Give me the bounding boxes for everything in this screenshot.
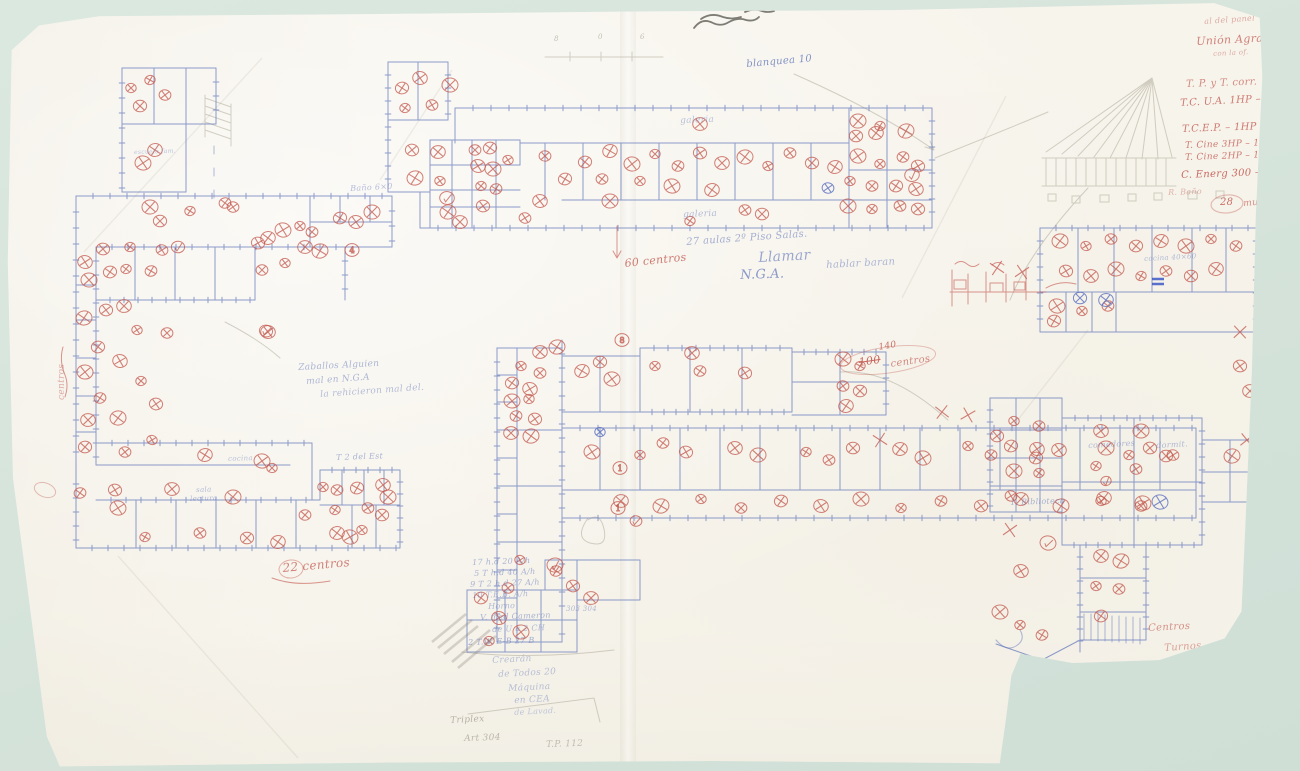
handwritten-note: Triplex bbox=[450, 715, 485, 726]
outlet-x-mark bbox=[1080, 240, 1092, 251]
stamp-hatch bbox=[432, 614, 478, 654]
outlet-x-mark bbox=[850, 113, 867, 128]
handwritten-note: 6 bbox=[640, 34, 645, 41]
handwritten-note: dormit. bbox=[1156, 440, 1188, 450]
outlet-x-mark bbox=[557, 172, 573, 186]
outlet-x-mark bbox=[518, 212, 532, 225]
outlet-x-mark bbox=[868, 126, 884, 140]
outlet-x-mark bbox=[990, 430, 1004, 443]
outlet-x-mark bbox=[548, 338, 567, 355]
blue-highlight bbox=[1152, 279, 1164, 284]
outlet-x-mark bbox=[502, 154, 514, 165]
circled-number: 1 bbox=[613, 462, 627, 475]
outlet-x-mark bbox=[1243, 384, 1258, 397]
handwritten-note: 303 304 bbox=[566, 606, 597, 613]
red-detail bbox=[1014, 282, 1025, 290]
outlet-x-mark bbox=[602, 194, 618, 208]
red-detail bbox=[992, 263, 1004, 266]
outlet-x-mark bbox=[534, 368, 546, 379]
outlet-x-mark bbox=[738, 204, 751, 216]
red-detail bbox=[954, 280, 966, 289]
outlet-x-mark bbox=[866, 204, 877, 214]
pencil-line bbox=[205, 95, 231, 146]
paper-sheet: 4811 al del panelUnión Agrariacon la of.… bbox=[0, 0, 1300, 771]
outlet-x-mark bbox=[405, 144, 419, 157]
handwritten-note: Horno bbox=[488, 602, 515, 611]
outlet-x-mark bbox=[985, 449, 997, 460]
outlet-x-mark bbox=[119, 446, 132, 457]
outlet-x-mark bbox=[394, 81, 409, 95]
outlet-x-mark bbox=[840, 199, 856, 214]
outlet-x-mark bbox=[1223, 448, 1241, 465]
outlet-check-mark bbox=[439, 191, 455, 205]
handwritten-note: T.P. 112 bbox=[546, 740, 583, 750]
outlet-x-mark bbox=[240, 532, 253, 544]
outlet-x-mark bbox=[139, 531, 151, 542]
outlet-x-mark bbox=[603, 371, 621, 387]
handwritten-note: C. Energ 300 – 6.4 bbox=[1181, 168, 1281, 181]
outlet-x-mark bbox=[476, 199, 491, 212]
outlet-x-mark bbox=[583, 444, 601, 461]
outlet-x-mark bbox=[875, 159, 886, 168]
circled-number: 1 bbox=[611, 502, 625, 515]
outlet-x-mark bbox=[911, 203, 925, 216]
outlet-x-mark bbox=[800, 446, 812, 457]
outlet-x-mark bbox=[1143, 442, 1157, 455]
blue-highlight-marks bbox=[1152, 279, 1164, 284]
pencil-line bbox=[1046, 78, 1152, 152]
outlet-x-mark bbox=[596, 173, 609, 184]
outlet-x-mark bbox=[1051, 443, 1067, 458]
outlet-x-mark bbox=[102, 265, 117, 279]
outlet-x-mark bbox=[126, 83, 137, 93]
outlet-x-mark bbox=[908, 181, 925, 196]
outlet-x-mark bbox=[1229, 240, 1242, 252]
outlet-x-mark bbox=[1129, 463, 1143, 475]
handwritten-note: R. Baño bbox=[1168, 188, 1202, 197]
outlet-x-mark bbox=[148, 397, 163, 411]
outlet-x-mark bbox=[755, 208, 768, 220]
handwritten-note: Art 304 bbox=[464, 734, 501, 744]
outlet-x-mark bbox=[434, 176, 446, 187]
outlet-x-mark bbox=[331, 484, 344, 496]
outlet-x-mark bbox=[318, 482, 329, 492]
outlet-x-mark bbox=[1035, 629, 1049, 642]
crease-line bbox=[380, 70, 452, 180]
red-loop bbox=[32, 480, 57, 501]
circled-number-value: 1 bbox=[618, 464, 623, 473]
outlet-x-mark bbox=[671, 160, 685, 172]
outlet-x-mark bbox=[483, 141, 498, 155]
outlet-x-mark bbox=[1046, 314, 1062, 329]
outlet-x-mark bbox=[893, 199, 907, 212]
plain-x-mark bbox=[961, 408, 976, 423]
outlet-x-mark bbox=[509, 410, 523, 423]
outlet-x-mark bbox=[224, 489, 241, 504]
outlet-x-mark bbox=[306, 226, 318, 237]
pencil-line bbox=[794, 74, 934, 150]
outlet-x-mark bbox=[962, 441, 973, 451]
outlet-x-mark bbox=[120, 264, 131, 274]
outlet-x-mark bbox=[442, 78, 458, 92]
outlet-x-mark bbox=[153, 215, 166, 227]
handwritten-note: Unión Agraria bbox=[1196, 32, 1280, 47]
outlet-x-mark bbox=[504, 427, 519, 440]
outlet-x-mark bbox=[888, 179, 903, 193]
red-detail bbox=[955, 262, 979, 267]
outlet-x-mark bbox=[159, 89, 172, 101]
handwritten-note: Turnos… bbox=[1164, 641, 1212, 654]
outlet-x-mark bbox=[813, 498, 830, 514]
outlet-x-mark bbox=[601, 143, 618, 159]
outlet-x-mark bbox=[1093, 549, 1108, 563]
outlet-x-mark bbox=[834, 351, 851, 367]
outlet-x-mark bbox=[650, 361, 661, 370]
outlet-x-mark bbox=[822, 454, 835, 466]
outlet-check-mark bbox=[1100, 475, 1112, 486]
outlet-check-mark bbox=[1039, 534, 1058, 552]
outlet-x-mark bbox=[762, 160, 774, 172]
circled-number-value: 4 bbox=[350, 246, 355, 255]
handwritten-note: galeria bbox=[683, 210, 717, 220]
plain-x-mark bbox=[935, 405, 948, 418]
outlet-x-mark bbox=[1090, 461, 1102, 472]
outlet-x-mark bbox=[1077, 306, 1088, 316]
handwritten-note: mult. bbox=[1243, 198, 1269, 209]
outlet-x-mark bbox=[1107, 261, 1124, 276]
plain-x-mark bbox=[1252, 446, 1265, 459]
outlet-x-mark bbox=[727, 441, 743, 455]
outlet-x-mark bbox=[96, 243, 110, 256]
outlet-x-mark bbox=[853, 492, 870, 507]
outlet-x-mark bbox=[375, 509, 389, 521]
handwritten-note: 28 bbox=[1220, 198, 1233, 208]
outlet-x-mark bbox=[1206, 234, 1216, 243]
outlet-x-mark bbox=[184, 205, 196, 216]
stamp-hatch bbox=[452, 630, 496, 668]
outlet-x-mark bbox=[895, 503, 906, 513]
outlet-x-mark bbox=[1051, 233, 1069, 249]
outlet-x-mark bbox=[1006, 464, 1022, 478]
outlet-x-mark bbox=[992, 604, 1009, 619]
outlet-x-mark bbox=[914, 449, 933, 467]
outlet-x-mark bbox=[193, 527, 206, 539]
outlet-x-mark bbox=[866, 181, 878, 192]
outlet-x-mark bbox=[299, 510, 311, 521]
red-detail bbox=[613, 226, 621, 258]
outlet-x-mark bbox=[896, 151, 909, 163]
dark-graphite-scribbles bbox=[694, 10, 774, 28]
outlet-x-mark bbox=[750, 448, 767, 463]
outlet-x-mark bbox=[81, 413, 96, 426]
graphite-scribble bbox=[745, 10, 774, 12]
outlet-x-mark bbox=[714, 156, 729, 169]
outlet-x-mark bbox=[109, 410, 127, 426]
outlet-x-mark bbox=[1184, 270, 1197, 282]
handwritten-note: 100 bbox=[858, 354, 881, 368]
outlet-x-mark bbox=[111, 353, 128, 369]
handwritten-note: 8 bbox=[554, 36, 559, 43]
outlet-x-mark bbox=[485, 161, 502, 176]
outlet-x-mark bbox=[146, 434, 158, 445]
outlet-x-mark bbox=[274, 221, 293, 239]
outlet-x-mark bbox=[380, 490, 396, 505]
outlet-x-mark bbox=[1090, 581, 1102, 592]
plain-x-mark bbox=[1003, 523, 1017, 537]
outlet-x-mark bbox=[1014, 620, 1025, 630]
pencil-line bbox=[545, 52, 663, 61]
outlet-x-mark bbox=[93, 392, 107, 405]
outlet-x-mark bbox=[136, 376, 147, 386]
outlet-x-mark bbox=[77, 254, 94, 270]
outlet-x-mark bbox=[849, 130, 863, 142]
handwritten-note: Llamar bbox=[758, 248, 811, 265]
outlet-x-mark bbox=[1012, 563, 1029, 579]
outlet-x-mark bbox=[532, 194, 548, 209]
outlet-x-mark bbox=[737, 366, 752, 380]
crease-line bbox=[84, 58, 262, 252]
blue-x-mark bbox=[821, 182, 834, 194]
outlet-x-mark bbox=[78, 441, 92, 454]
outlet-x-mark bbox=[692, 146, 707, 160]
outlet-x-mark bbox=[693, 365, 706, 377]
outlet-x-mark bbox=[406, 169, 425, 186]
outlet-x-mark bbox=[164, 482, 179, 496]
pencil-line bbox=[462, 650, 614, 656]
red-detail bbox=[1046, 283, 1076, 288]
pencil-line bbox=[1078, 78, 1152, 156]
outlet-x-mark bbox=[1094, 609, 1109, 623]
outlet-x-mark bbox=[107, 483, 122, 497]
outlet-x-mark bbox=[503, 393, 520, 408]
outlet-x-mark bbox=[704, 183, 720, 198]
outlet-x-mark bbox=[144, 264, 158, 277]
handwritten-note: T 2 del Est bbox=[336, 452, 383, 462]
outlet-x-mark bbox=[634, 176, 645, 186]
handwritten-note: lectura bbox=[190, 495, 217, 503]
outlet-x-mark bbox=[573, 363, 590, 379]
outlet-x-mark bbox=[1058, 264, 1073, 278]
outlet-x-mark bbox=[657, 437, 670, 449]
outlet-x-mark bbox=[155, 244, 169, 257]
outlet-x-mark bbox=[1048, 297, 1067, 314]
handwritten-note: N.G.A. bbox=[740, 267, 784, 282]
outlet-x-mark bbox=[361, 502, 375, 514]
outlet-x-mark bbox=[161, 328, 173, 339]
outlet-x-mark bbox=[1113, 584, 1125, 594]
graphite-scribble bbox=[701, 15, 741, 19]
pencil-line bbox=[1010, 188, 1088, 300]
outlet-x-mark bbox=[73, 487, 86, 499]
outlet-x-mark bbox=[623, 156, 641, 172]
crease-line bbox=[902, 96, 1006, 298]
outlet-x-mark bbox=[356, 525, 367, 535]
outlet-x-mark bbox=[652, 497, 671, 515]
outlet-x-mark bbox=[1112, 552, 1131, 569]
pencil-line bbox=[1062, 78, 1152, 154]
pencil-line bbox=[1126, 78, 1152, 158]
outlet-x-mark bbox=[91, 340, 106, 353]
outlet-x-mark bbox=[1129, 240, 1143, 253]
outlet-x-mark bbox=[364, 205, 380, 219]
pencil-line bbox=[581, 517, 604, 544]
outlet-x-mark bbox=[892, 442, 908, 457]
outlet-x-mark bbox=[399, 103, 411, 114]
outlet-x-mark bbox=[736, 149, 754, 165]
handwritten-note: centros bbox=[58, 364, 67, 400]
outlet-x-mark bbox=[260, 231, 276, 246]
crease-line bbox=[118, 556, 298, 758]
outlet-x-mark bbox=[1033, 468, 1045, 479]
outlet-x-mark bbox=[565, 579, 580, 593]
blue-x-mark bbox=[1151, 493, 1170, 511]
plan-drawing: 4811 bbox=[0, 0, 1300, 771]
circled-number: 4 bbox=[345, 244, 359, 257]
handwritten-note: en CEA bbox=[514, 695, 550, 706]
outlet-x-mark bbox=[849, 148, 867, 165]
outlet-x-mark bbox=[827, 159, 844, 175]
outlet-x-mark bbox=[528, 412, 543, 426]
outlet-x-mark bbox=[532, 345, 547, 359]
outlet-x-mark bbox=[663, 177, 682, 194]
outlet-x-mark bbox=[349, 481, 365, 496]
outlet-x-mark bbox=[784, 147, 797, 159]
outlet-x-mark bbox=[896, 122, 915, 140]
outlet-x-mark bbox=[133, 100, 147, 112]
handwritten-note: sala bbox=[196, 486, 212, 494]
outlet-x-mark bbox=[773, 494, 788, 508]
outlet-markers: 4811 bbox=[73, 70, 1264, 645]
blue-x-mark bbox=[1073, 292, 1086, 304]
outlet-x-mark bbox=[430, 145, 445, 159]
outlet-x-mark bbox=[1083, 269, 1098, 283]
outlet-x-mark bbox=[584, 591, 599, 604]
outlet-x-mark bbox=[99, 303, 114, 316]
outlet-x-mark bbox=[1133, 424, 1149, 439]
outlet-x-mark bbox=[1159, 265, 1172, 277]
handwritten-note: galeria bbox=[680, 116, 714, 126]
pencil-line bbox=[225, 322, 280, 358]
outlet-x-mark bbox=[453, 215, 468, 228]
outlet-x-mark bbox=[578, 156, 592, 169]
outlet-x-mark bbox=[1233, 359, 1248, 372]
outlet-x-mark bbox=[253, 453, 271, 469]
outlet-x-mark bbox=[1093, 424, 1109, 439]
outlet-x-mark bbox=[1208, 261, 1225, 276]
outlet-x-mark bbox=[294, 221, 305, 231]
handwritten-note: cocina bbox=[228, 455, 253, 463]
outlet-x-mark bbox=[695, 494, 707, 505]
red-detail bbox=[272, 578, 330, 583]
outlet-x-mark bbox=[735, 503, 747, 514]
outlet-x-mark bbox=[974, 499, 989, 512]
outlet-x-mark bbox=[1123, 450, 1135, 461]
outlet-x-mark bbox=[844, 176, 855, 186]
crease-line bbox=[1010, 330, 1088, 430]
outlet-x-mark bbox=[469, 145, 481, 155]
outlet-x-mark bbox=[131, 325, 143, 336]
outlet-x-mark bbox=[846, 442, 859, 454]
circled-number: 8 bbox=[615, 334, 629, 347]
outlet-x-mark bbox=[1135, 270, 1147, 281]
outlet-check-mark bbox=[629, 515, 642, 527]
outlet-x-mark bbox=[142, 200, 159, 215]
handwritten-note: 626 b bbox=[20, 754, 39, 760]
outlet-x-mark bbox=[853, 385, 867, 397]
outlet-x-mark bbox=[279, 258, 291, 269]
outlet-x-mark bbox=[329, 505, 341, 516]
pencil-line bbox=[935, 112, 1048, 158]
outlet-x-mark bbox=[196, 447, 213, 463]
scanned-floor-plan-sheet: { "scene": { "background_color": "#d6e4d… bbox=[0, 0, 1300, 771]
outlet-x-mark bbox=[805, 157, 819, 169]
pencil-line bbox=[1110, 78, 1152, 158]
outlet-x-mark bbox=[134, 155, 152, 172]
outlet-x-mark bbox=[1152, 233, 1169, 249]
handwritten-note: 0 bbox=[598, 34, 603, 41]
red-detail bbox=[990, 283, 1003, 292]
circled-number-value: 1 bbox=[616, 504, 621, 513]
outlet-x-mark bbox=[256, 265, 268, 276]
outlet-x-mark bbox=[412, 70, 429, 85]
outlet-x-mark bbox=[1105, 233, 1118, 244]
blue-x-mark bbox=[1098, 293, 1114, 308]
circled-number-value: 8 bbox=[620, 336, 625, 345]
wall-segment bbox=[1042, 640, 1080, 660]
outlet-x-mark bbox=[934, 494, 948, 507]
outlet-x-mark bbox=[874, 120, 886, 131]
pencil-line bbox=[1046, 158, 1166, 186]
